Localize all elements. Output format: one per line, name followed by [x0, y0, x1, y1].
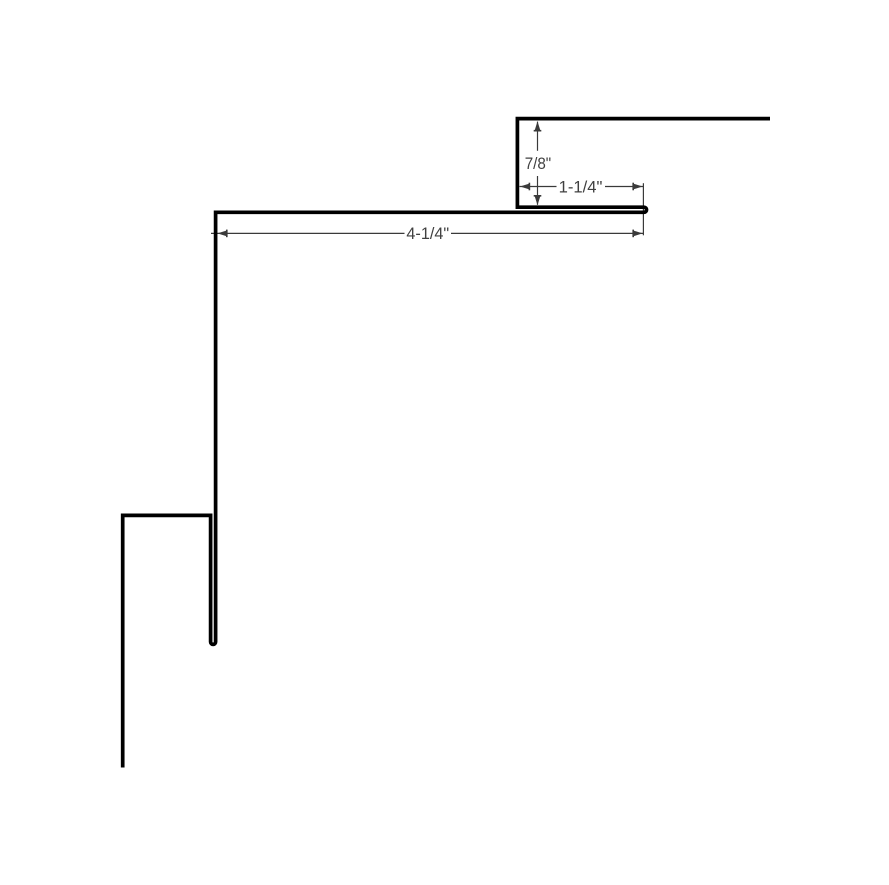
svg-text:1-1/4": 1-1/4"	[559, 178, 603, 196]
svg-text:4-1/4": 4-1/4"	[406, 225, 449, 243]
svg-text:7/8": 7/8"	[525, 155, 552, 173]
